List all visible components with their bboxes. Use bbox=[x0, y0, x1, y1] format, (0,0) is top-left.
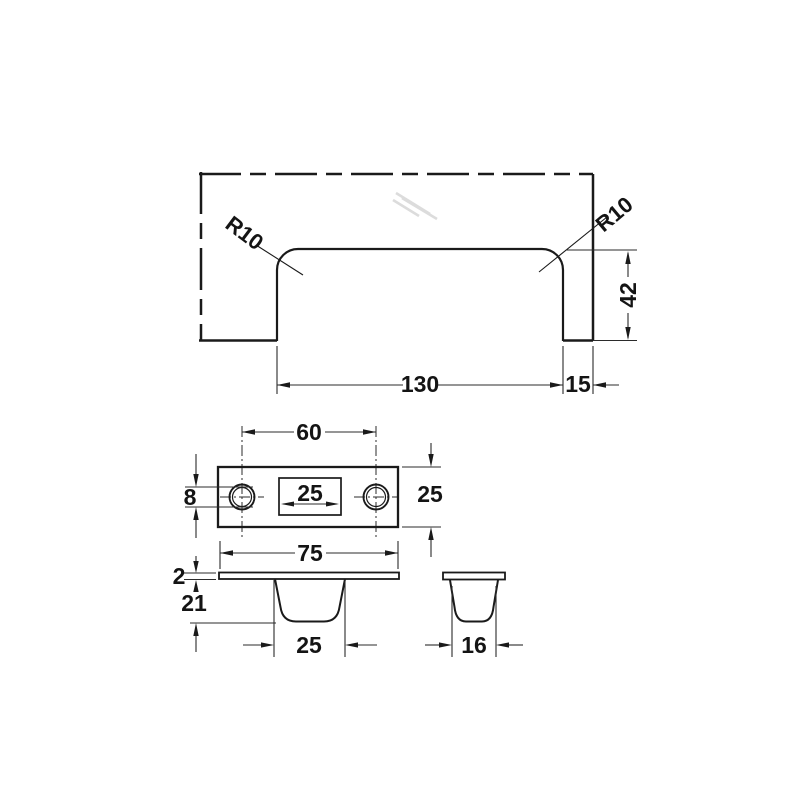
panel-outline bbox=[199, 172, 593, 341]
dim-edge-distance bbox=[593, 346, 619, 394]
dim-grip-length-label: 130 bbox=[401, 371, 439, 397]
surface-hatch-marks bbox=[393, 193, 437, 219]
dimension-drawing-page: R10 R10 42 130 15 bbox=[0, 0, 800, 800]
dim-flange-thickness-label: 2 bbox=[173, 563, 186, 589]
dim-hole-spacing-label: 60 bbox=[296, 419, 322, 445]
panel-front-view bbox=[199, 172, 607, 341]
dim-recess-width-label: 16 bbox=[461, 632, 487, 658]
dim-radius-right-label: R10 bbox=[591, 192, 638, 237]
dim-hole-diameter-label: 8 bbox=[184, 484, 197, 510]
handle-profile bbox=[277, 249, 563, 341]
dim-flange-length-label: 75 bbox=[297, 540, 323, 566]
dim-slot-length-label: 25 bbox=[297, 480, 323, 506]
dim-plate-width-label: 25 bbox=[417, 481, 443, 507]
dim-edge-distance-label: 15 bbox=[565, 371, 591, 397]
dim-flange-thickness bbox=[184, 556, 216, 592]
technical-drawing: R10 R10 42 130 15 bbox=[0, 0, 800, 800]
dim-recess-depth bbox=[190, 623, 276, 652]
flange-side bbox=[443, 573, 505, 580]
dim-grip-height-label: 42 bbox=[615, 282, 641, 308]
recess-front-profile bbox=[219, 573, 399, 622]
flange-front bbox=[219, 573, 399, 580]
dim-recess-length-label: 25 bbox=[296, 632, 322, 658]
recess-cup-side bbox=[450, 580, 498, 622]
recess-cup-front bbox=[275, 579, 345, 622]
dim-recess-depth-label: 21 bbox=[181, 590, 207, 616]
